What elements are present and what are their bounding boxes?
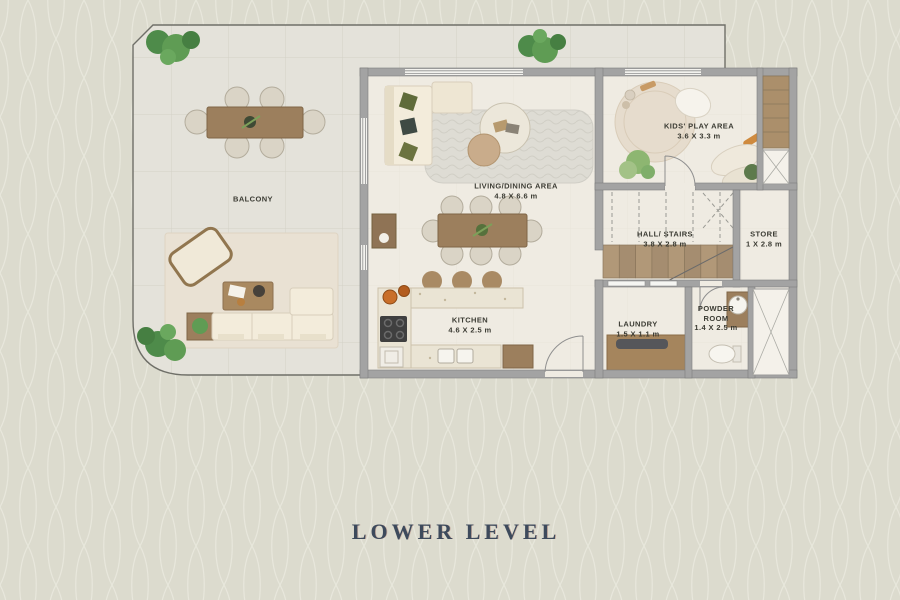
room-dims: 3.6 X 3.3 m [664, 131, 734, 141]
balcony-coffee-table [223, 282, 273, 310]
room-name: KITCHEN [448, 316, 491, 326]
toilet-icon [709, 345, 741, 363]
stove-icon [380, 316, 407, 342]
room-name: HALL/ STAIRS [637, 230, 693, 240]
label-powder-room: POWDER ROOM 1.4 X 2.5 m [688, 304, 744, 333]
room-dims: 4.8 X 6.6 m [474, 191, 558, 201]
room-dims: 1.5 X 1.1 m [616, 329, 659, 339]
shaft-x [753, 289, 789, 375]
plan-title: LOWER LEVEL [352, 519, 560, 545]
label-balcony: BALCONY [233, 194, 273, 204]
label-kids-play: KIDS' PLAY AREA 3.6 X 3.3 m [664, 122, 734, 141]
room-dims: 1 X 2.8 m [746, 239, 782, 249]
kids-shelf [763, 76, 789, 148]
room-name: KIDS' PLAY AREA [664, 122, 734, 132]
dishwasher-icon [380, 347, 403, 367]
label-hall-stairs: HALL/ STAIRS 3.8 X 2.8 m [637, 230, 693, 249]
room-name: POWDER ROOM [688, 304, 744, 323]
label-laundry: LAUNDRY 1.5 X 1.1 m [616, 320, 659, 339]
laundry-counter [607, 335, 686, 373]
room-name: BALCONY [233, 194, 273, 204]
room-name: STORE [746, 230, 782, 240]
tv-console [372, 214, 396, 248]
room-name: LIVING/DINING AREA [474, 182, 558, 192]
kids-closet-x [763, 150, 789, 184]
floor-plan-page: BALCONY LIVING/DINING AREA 4.8 X 6.6 m K… [0, 0, 900, 600]
label-living-dining: LIVING/DINING AREA 4.8 X 6.6 m [474, 182, 558, 201]
room-dims: 3.8 X 2.8 m [637, 239, 693, 249]
room-dims: 4.6 X 2.5 m [448, 325, 491, 335]
floor-plan-graphic [0, 0, 900, 600]
room-name: LAUNDRY [616, 320, 659, 330]
label-store: STORE 1 X 2.8 m [746, 230, 782, 249]
room-dims: 1.4 X 2.5 m [688, 323, 744, 333]
label-kitchen: KITCHEN 4.6 X 2.5 m [448, 316, 491, 335]
